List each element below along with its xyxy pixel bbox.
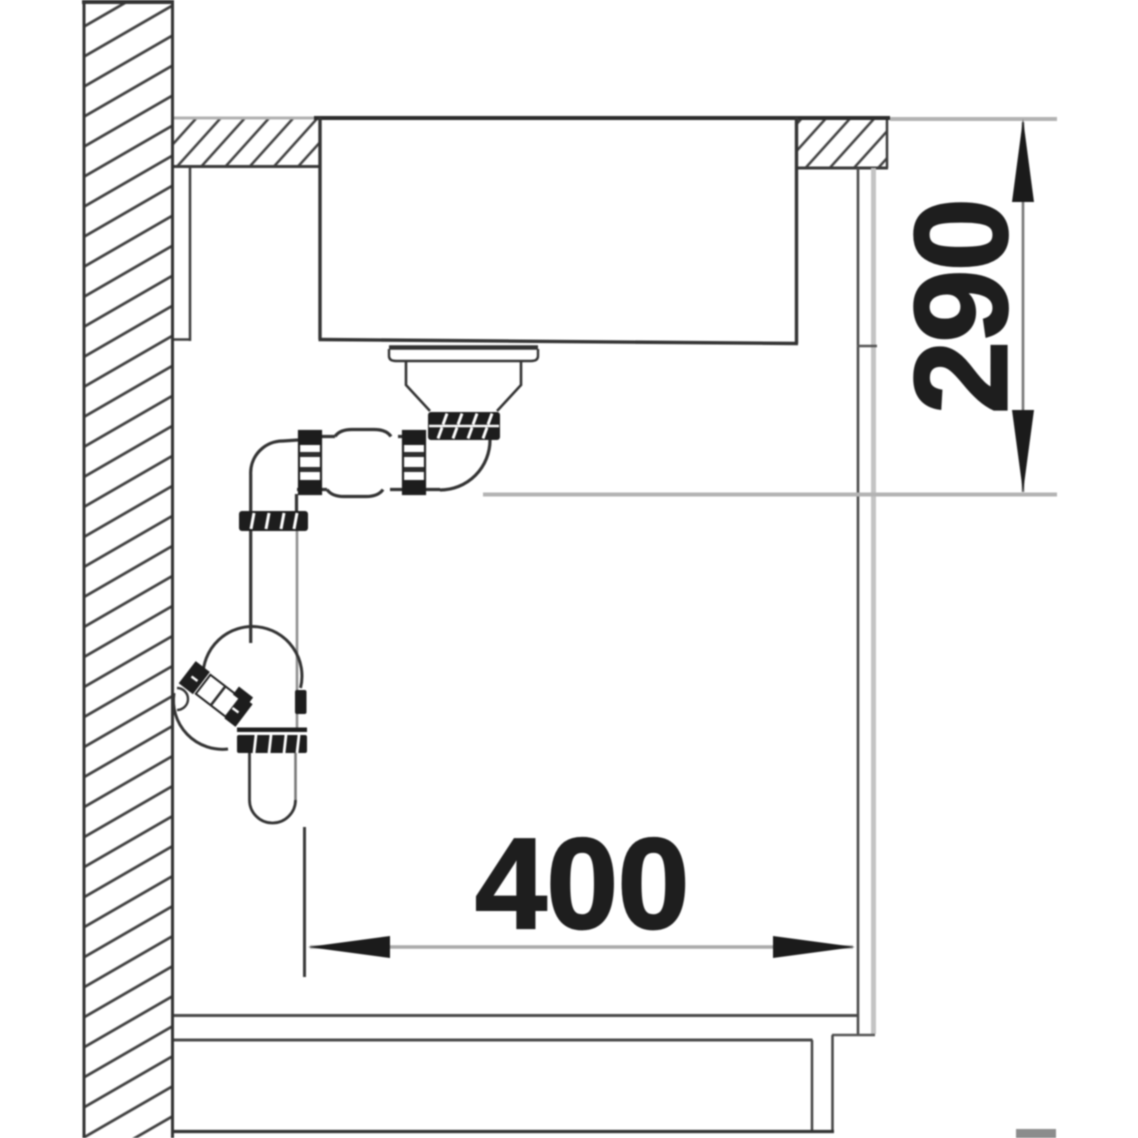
svg-text:400: 400: [475, 812, 689, 956]
svg-text:290: 290: [888, 200, 1035, 414]
